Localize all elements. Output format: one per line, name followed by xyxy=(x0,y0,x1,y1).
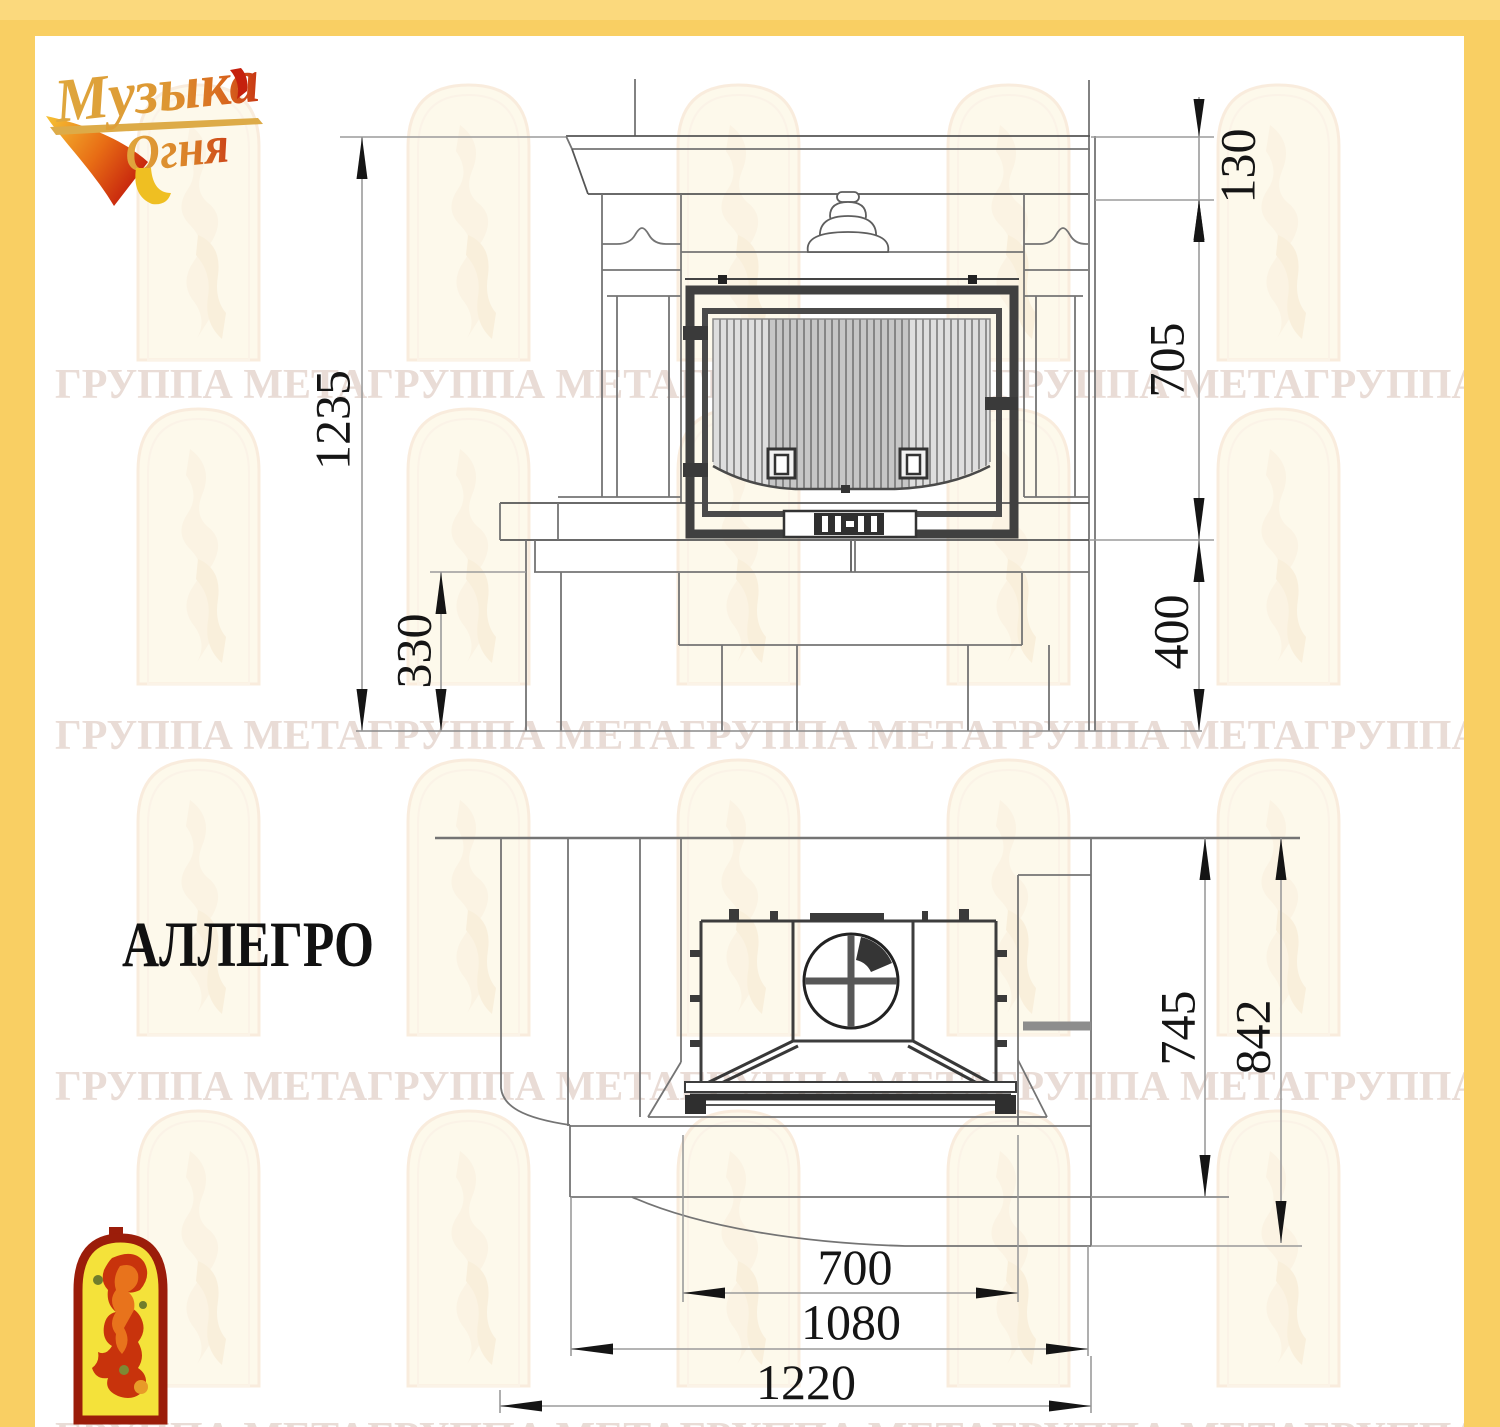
svg-text:842: 842 xyxy=(1224,1000,1280,1075)
svg-text:130: 130 xyxy=(1209,129,1265,204)
svg-text:1220: 1220 xyxy=(756,1354,856,1410)
svg-text:700: 700 xyxy=(818,1239,893,1295)
svg-text:400: 400 xyxy=(1142,595,1198,670)
svg-text:330: 330 xyxy=(385,614,441,689)
svg-text:ГРУППА МЕТАГРУППА МЕТАГРУППА М: ГРУППА МЕТАГРУППА МЕТАГРУППА МЕТАГРУППА … xyxy=(55,713,1500,759)
svg-text:АЛЛЕГРО: АЛЛЕГРО xyxy=(122,909,374,981)
svg-text:705: 705 xyxy=(1138,323,1194,398)
svg-text:1080: 1080 xyxy=(801,1294,901,1350)
svg-text:ГРУППА МЕТАГРУППА МЕТАГРУППА М: ГРУППА МЕТАГРУППА МЕТАГРУППА МЕТАГРУППА … xyxy=(55,1415,1500,1427)
svg-text:745: 745 xyxy=(1149,991,1205,1066)
svg-text:1235: 1235 xyxy=(304,370,360,470)
